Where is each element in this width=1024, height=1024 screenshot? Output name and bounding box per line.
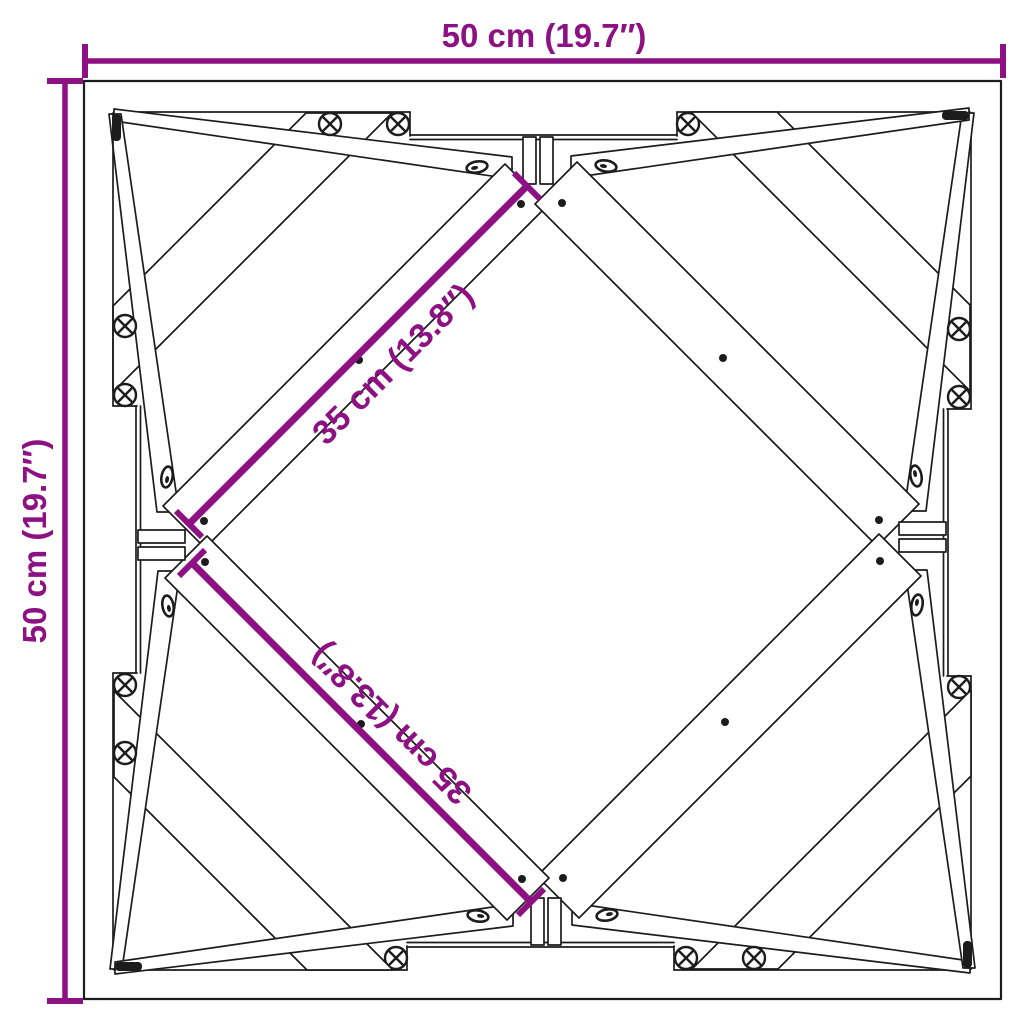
dimension-label-left: 50 cm (19.7″) [16, 439, 53, 644]
dimension-label-top: 50 cm (19.7″) [442, 17, 647, 54]
frame-drawing-svg: 50 cm (19.7″) 50 cm (19.7″) 35 cm (13.8″… [0, 0, 1024, 1024]
product-dimension-diagram: 50 cm (19.7″) 50 cm (19.7″) 35 cm (13.8″… [0, 0, 1024, 1024]
